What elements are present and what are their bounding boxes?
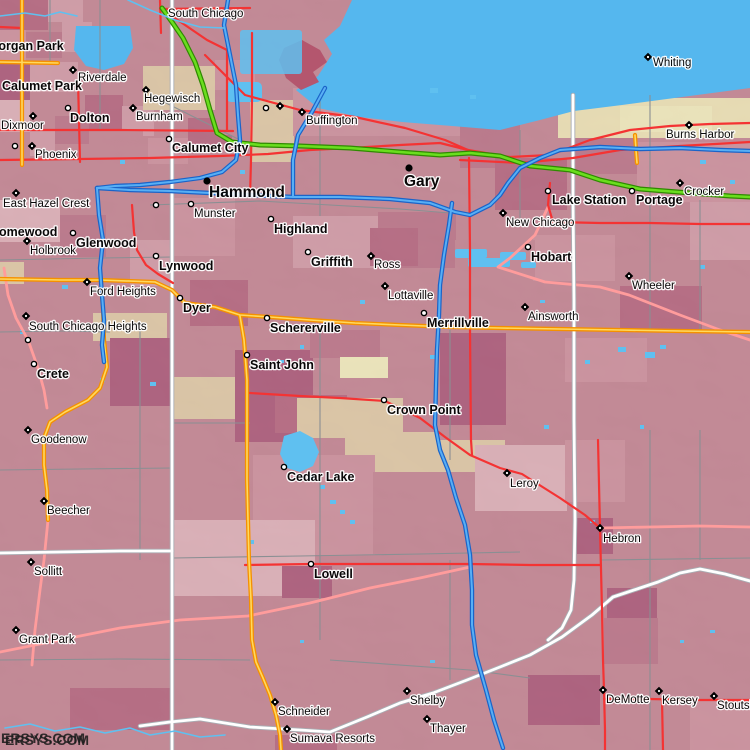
village-diamond-center (132, 107, 134, 109)
place-label-dyer: Dyer (183, 301, 211, 315)
village-diamond-center (688, 124, 690, 126)
village-diamond-center (301, 111, 303, 113)
place-label-lake-station: Lake Station (552, 193, 626, 207)
town-circle-marker (281, 464, 286, 469)
town-circle-marker (525, 244, 530, 249)
place-label-holbrook: Holbrook (30, 245, 76, 257)
top-left-orange (0, 62, 58, 63)
watermark: ERSYS.COMERSYS.COM (1, 730, 89, 748)
place-label-wheeler: Wheeler (632, 280, 675, 292)
south-chicago-ave (160, 0, 161, 33)
pond (120, 160, 125, 164)
village-diamond-center (32, 115, 34, 117)
place-label-hammond: Hammond (209, 184, 285, 201)
village-diamond-center (26, 240, 28, 242)
place-label-leroy: Leroy (510, 478, 539, 490)
place-label-east-hazel-crest: East Hazel Crest (3, 198, 90, 210)
village-diamond-center (602, 689, 604, 691)
town-circle-marker (12, 143, 17, 148)
place-label-phoenix: Phoenix (35, 149, 77, 161)
village-diamond-center (628, 275, 630, 277)
town-circle-marker (244, 352, 249, 357)
pond (300, 640, 304, 643)
place-label-south-chicago-heights: South Chicago Heights (29, 321, 147, 333)
place-label-ford-heights: Ford Heights (90, 286, 156, 298)
town-circle-marker (166, 136, 171, 141)
place-label-munster: Munster (194, 208, 236, 220)
pond (700, 265, 705, 269)
place-label-gary: Gary (404, 173, 440, 190)
place-label-burnham: Burnham (136, 111, 183, 123)
pond (730, 180, 735, 184)
pond (645, 352, 655, 358)
place-label-saint-john: Saint John (250, 358, 314, 372)
pond (320, 485, 325, 489)
pond (680, 640, 684, 643)
place-label-lynwood: Lynwood (159, 259, 213, 273)
pond (330, 500, 336, 504)
town-circle-marker (263, 105, 268, 110)
place-label-dixmoor: Dixmoor (1, 120, 44, 132)
town-circle-marker (25, 337, 30, 342)
place-label-shelby: Shelby (410, 695, 445, 707)
village-diamond-center (279, 105, 281, 107)
village-diamond-center (15, 629, 17, 631)
place-label-beecher: Beecher (47, 505, 90, 517)
place-label-portage: Portage (636, 193, 683, 207)
town-circle-marker (31, 361, 36, 366)
town-circle-marker (264, 315, 269, 320)
town-circle-marker (65, 105, 70, 110)
town-circle-marker (421, 310, 426, 315)
place-label-crown-point: Crown Point (387, 403, 461, 417)
place-label-glenwood: Glenwood (76, 236, 136, 250)
place-label-hobart: Hobart (531, 250, 572, 264)
village-diamond-center (713, 695, 715, 697)
place-label-dolton: Dolton (70, 111, 110, 125)
place-label-cedar-lake: Cedar Lake (287, 470, 354, 484)
town-circle-marker (305, 249, 310, 254)
place-label-hebron: Hebron (603, 533, 641, 545)
top-left-red (0, 27, 22, 28)
town-circle-marker (153, 202, 158, 207)
village-diamond-center (384, 285, 386, 287)
place-label-grant-park: Grant Park (19, 634, 75, 646)
village-diamond-center (502, 212, 504, 214)
village-diamond-center (406, 690, 408, 692)
place-label-crete: Crete (37, 367, 69, 381)
place-morgan-park[interactable]: Morgan Park (0, 39, 64, 53)
place-label-schneider: Schneider (278, 706, 330, 718)
place-label-merrillville: Merrillville (427, 316, 489, 330)
place-label-calumet-city: Calumet City (172, 141, 248, 155)
pond (470, 95, 476, 99)
lowell-road (245, 564, 601, 565)
village-diamond-center (426, 718, 428, 720)
village-diamond-center (274, 701, 276, 703)
town-circle-marker (177, 295, 182, 300)
place-calumet-park[interactable]: Calumet Park (2, 79, 82, 93)
city-dot-marker (405, 164, 412, 171)
place-label-stoutsburg: Stoutsburg (717, 700, 750, 712)
village-diamond-center (30, 561, 32, 563)
place-label-sollitt: Sollitt (34, 566, 63, 578)
town-circle-marker (629, 188, 634, 193)
village-diamond-center (145, 89, 147, 91)
village-diamond-center (43, 500, 45, 502)
pond (540, 300, 545, 303)
village-diamond-center (506, 472, 508, 474)
town-circle-marker (381, 397, 386, 402)
village-diamond-center (524, 306, 526, 308)
pond (585, 360, 590, 364)
place-label-sumava-resorts: Sumava Resorts (290, 733, 375, 745)
place-label-lottaville: Lottaville (388, 290, 433, 302)
pond (544, 425, 549, 429)
place-label-kersey: Kersey (662, 695, 698, 707)
place-label-whiting: Whiting (653, 57, 691, 69)
hebron-east-road (601, 526, 750, 528)
village-diamond-center (27, 429, 29, 431)
place-label-ainsworth: Ainsworth (528, 311, 579, 323)
place-label-morgan-park: Morgan Park (0, 39, 64, 53)
village-diamond-center (370, 255, 372, 257)
pond (710, 630, 715, 633)
place-south-chicago[interactable]: South Chicago (168, 8, 243, 20)
place-label-homewood: Homewood (0, 225, 57, 239)
place-label-new-chicago: New Chicago (506, 217, 574, 229)
village-diamond-center (25, 315, 27, 317)
pond (300, 345, 304, 349)
place-label-south-chicago: South Chicago (168, 8, 243, 20)
place-label-burns-harbor: Burns Harbor (666, 129, 735, 141)
map-viewport[interactable]: South ChicagoMorgan ParkRiverdaleWhiting… (0, 0, 750, 750)
pond (240, 170, 245, 174)
place-homewood[interactable]: Homewood (0, 225, 57, 239)
ersys-watermark: ERSYS.COM (5, 732, 89, 748)
place-label-calumet-park: Calumet Park (2, 79, 82, 93)
map-canvas: South ChicagoMorgan ParkRiverdaleWhiting… (0, 0, 750, 750)
place-label-buffington: Buffington (306, 115, 358, 127)
place-label-goodenow: Goodenow (31, 434, 87, 446)
village-diamond-center (679, 182, 681, 184)
village-diamond-center (86, 281, 88, 283)
village-diamond-center (647, 56, 649, 58)
village-diamond-center (658, 690, 660, 692)
town-circle-marker (153, 253, 158, 258)
village-diamond-center (31, 145, 33, 147)
place-label-griffith: Griffith (311, 255, 353, 269)
pond (340, 510, 345, 514)
place-label-riverdale: Riverdale (78, 72, 127, 84)
town-circle-marker (188, 201, 193, 206)
place-label-hegewisch: Hegewisch (144, 93, 200, 105)
pond (430, 88, 438, 93)
town-circle-marker (308, 561, 313, 566)
place-label-thayer: Thayer (430, 723, 466, 735)
place-label-lowell: Lowell (314, 567, 353, 581)
place-label-ross: Ross (374, 259, 400, 271)
pond (350, 520, 355, 524)
pond (150, 382, 156, 386)
village-diamond-center (72, 69, 74, 71)
place-label-schererville: Schererville (270, 321, 341, 335)
place-label-highland: Highland (274, 222, 327, 236)
pond (430, 355, 435, 359)
pond (660, 345, 666, 349)
village-diamond-center (15, 192, 17, 194)
pond (62, 285, 68, 289)
town-circle-marker (70, 230, 75, 235)
marsh-area (240, 30, 302, 74)
pond (700, 160, 706, 164)
pond (360, 300, 365, 304)
village-diamond-center (599, 527, 601, 529)
town-circle-marker (268, 216, 273, 221)
kersey-road (662, 700, 663, 750)
place-label-crocker: Crocker (684, 186, 724, 198)
pond (618, 347, 626, 352)
pond (640, 425, 644, 429)
place-label-demotte: DeMotte (606, 694, 649, 706)
pond (430, 660, 435, 663)
town-circle-marker (545, 188, 550, 193)
village-diamond-center (286, 728, 288, 730)
